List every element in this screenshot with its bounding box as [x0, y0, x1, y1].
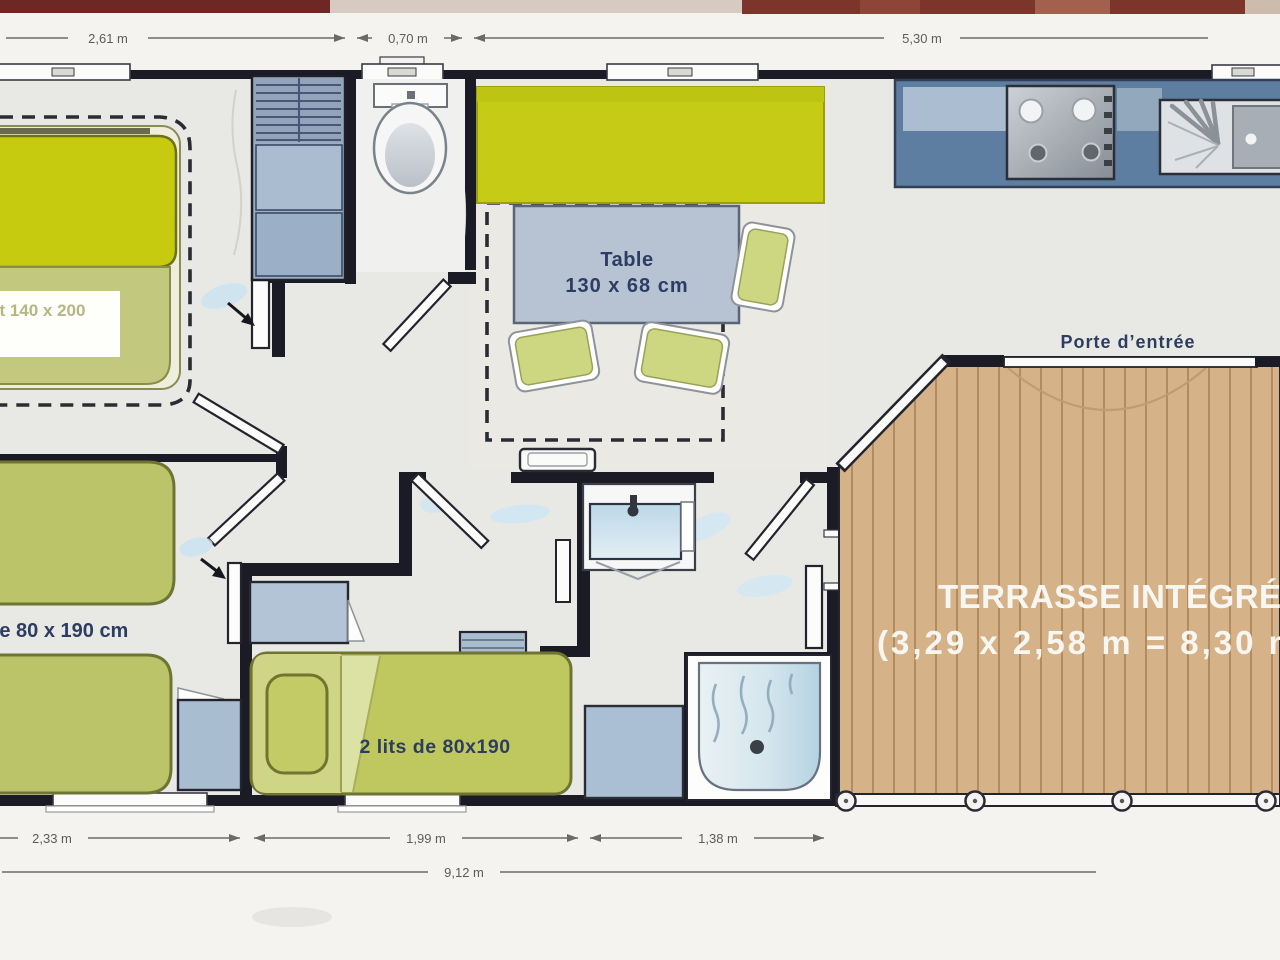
svg-text:2 lits de 80x190: 2 lits de 80x190 [359, 736, 510, 758]
svg-text:9,12 m: 9,12 m [444, 865, 484, 880]
svg-text:130 x 68 cm: 130 x 68 cm [565, 275, 688, 297]
svg-text:1,99 m: 1,99 m [406, 831, 446, 846]
svg-text:lit 140 x 200: lit 140 x 200 [0, 301, 85, 320]
svg-text:5,30 m: 5,30 m [902, 31, 942, 46]
svg-text:Table: Table [600, 249, 653, 271]
svg-text:0,70 m: 0,70 m [388, 31, 428, 46]
svg-text:2 lits de 80 x 190 cm: 2 lits de 80 x 190 cm [0, 620, 128, 642]
svg-text:TERRASSE INTÉGRÉE: TERRASSE INTÉGRÉE [938, 578, 1280, 615]
svg-text:2,61 m: 2,61 m [88, 31, 128, 46]
svg-text:1,38 m: 1,38 m [698, 831, 738, 846]
svg-text:Porte d’entrée: Porte d’entrée [1060, 332, 1195, 352]
svg-text:(3,29 x 2,58 m = 8,30 m²): (3,29 x 2,58 m = 8,30 m²) [877, 624, 1280, 661]
svg-text:2,33 m: 2,33 m [32, 831, 72, 846]
